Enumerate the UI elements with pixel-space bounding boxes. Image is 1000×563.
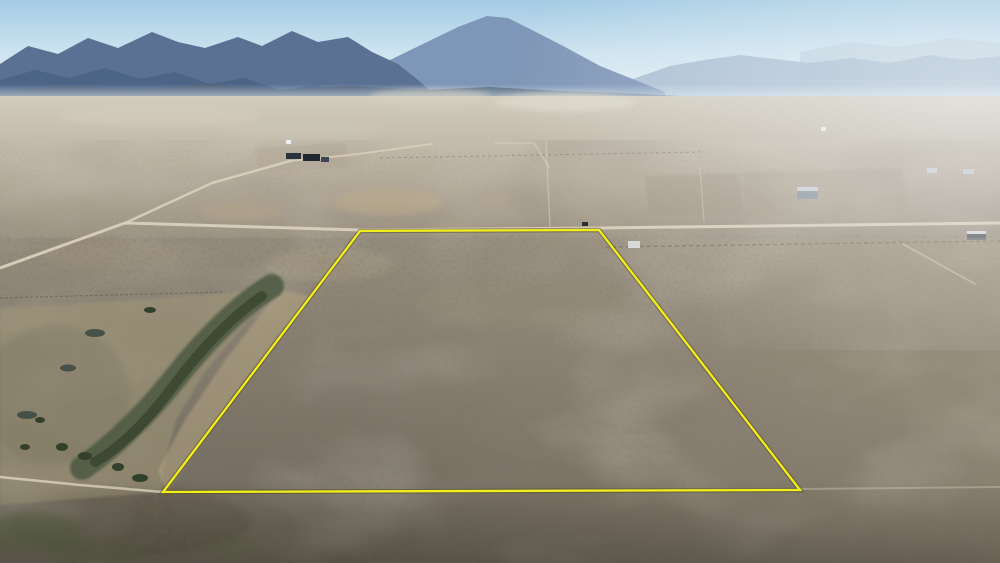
white-hut (286, 140, 291, 144)
homestead-building (321, 157, 329, 162)
playa-patch (220, 120, 380, 140)
aerial-photo (0, 0, 1000, 563)
homestead-building (303, 154, 320, 161)
aerial-photo-canvas (0, 0, 1000, 563)
homestead-building (286, 153, 301, 159)
playa-patch (60, 105, 260, 127)
